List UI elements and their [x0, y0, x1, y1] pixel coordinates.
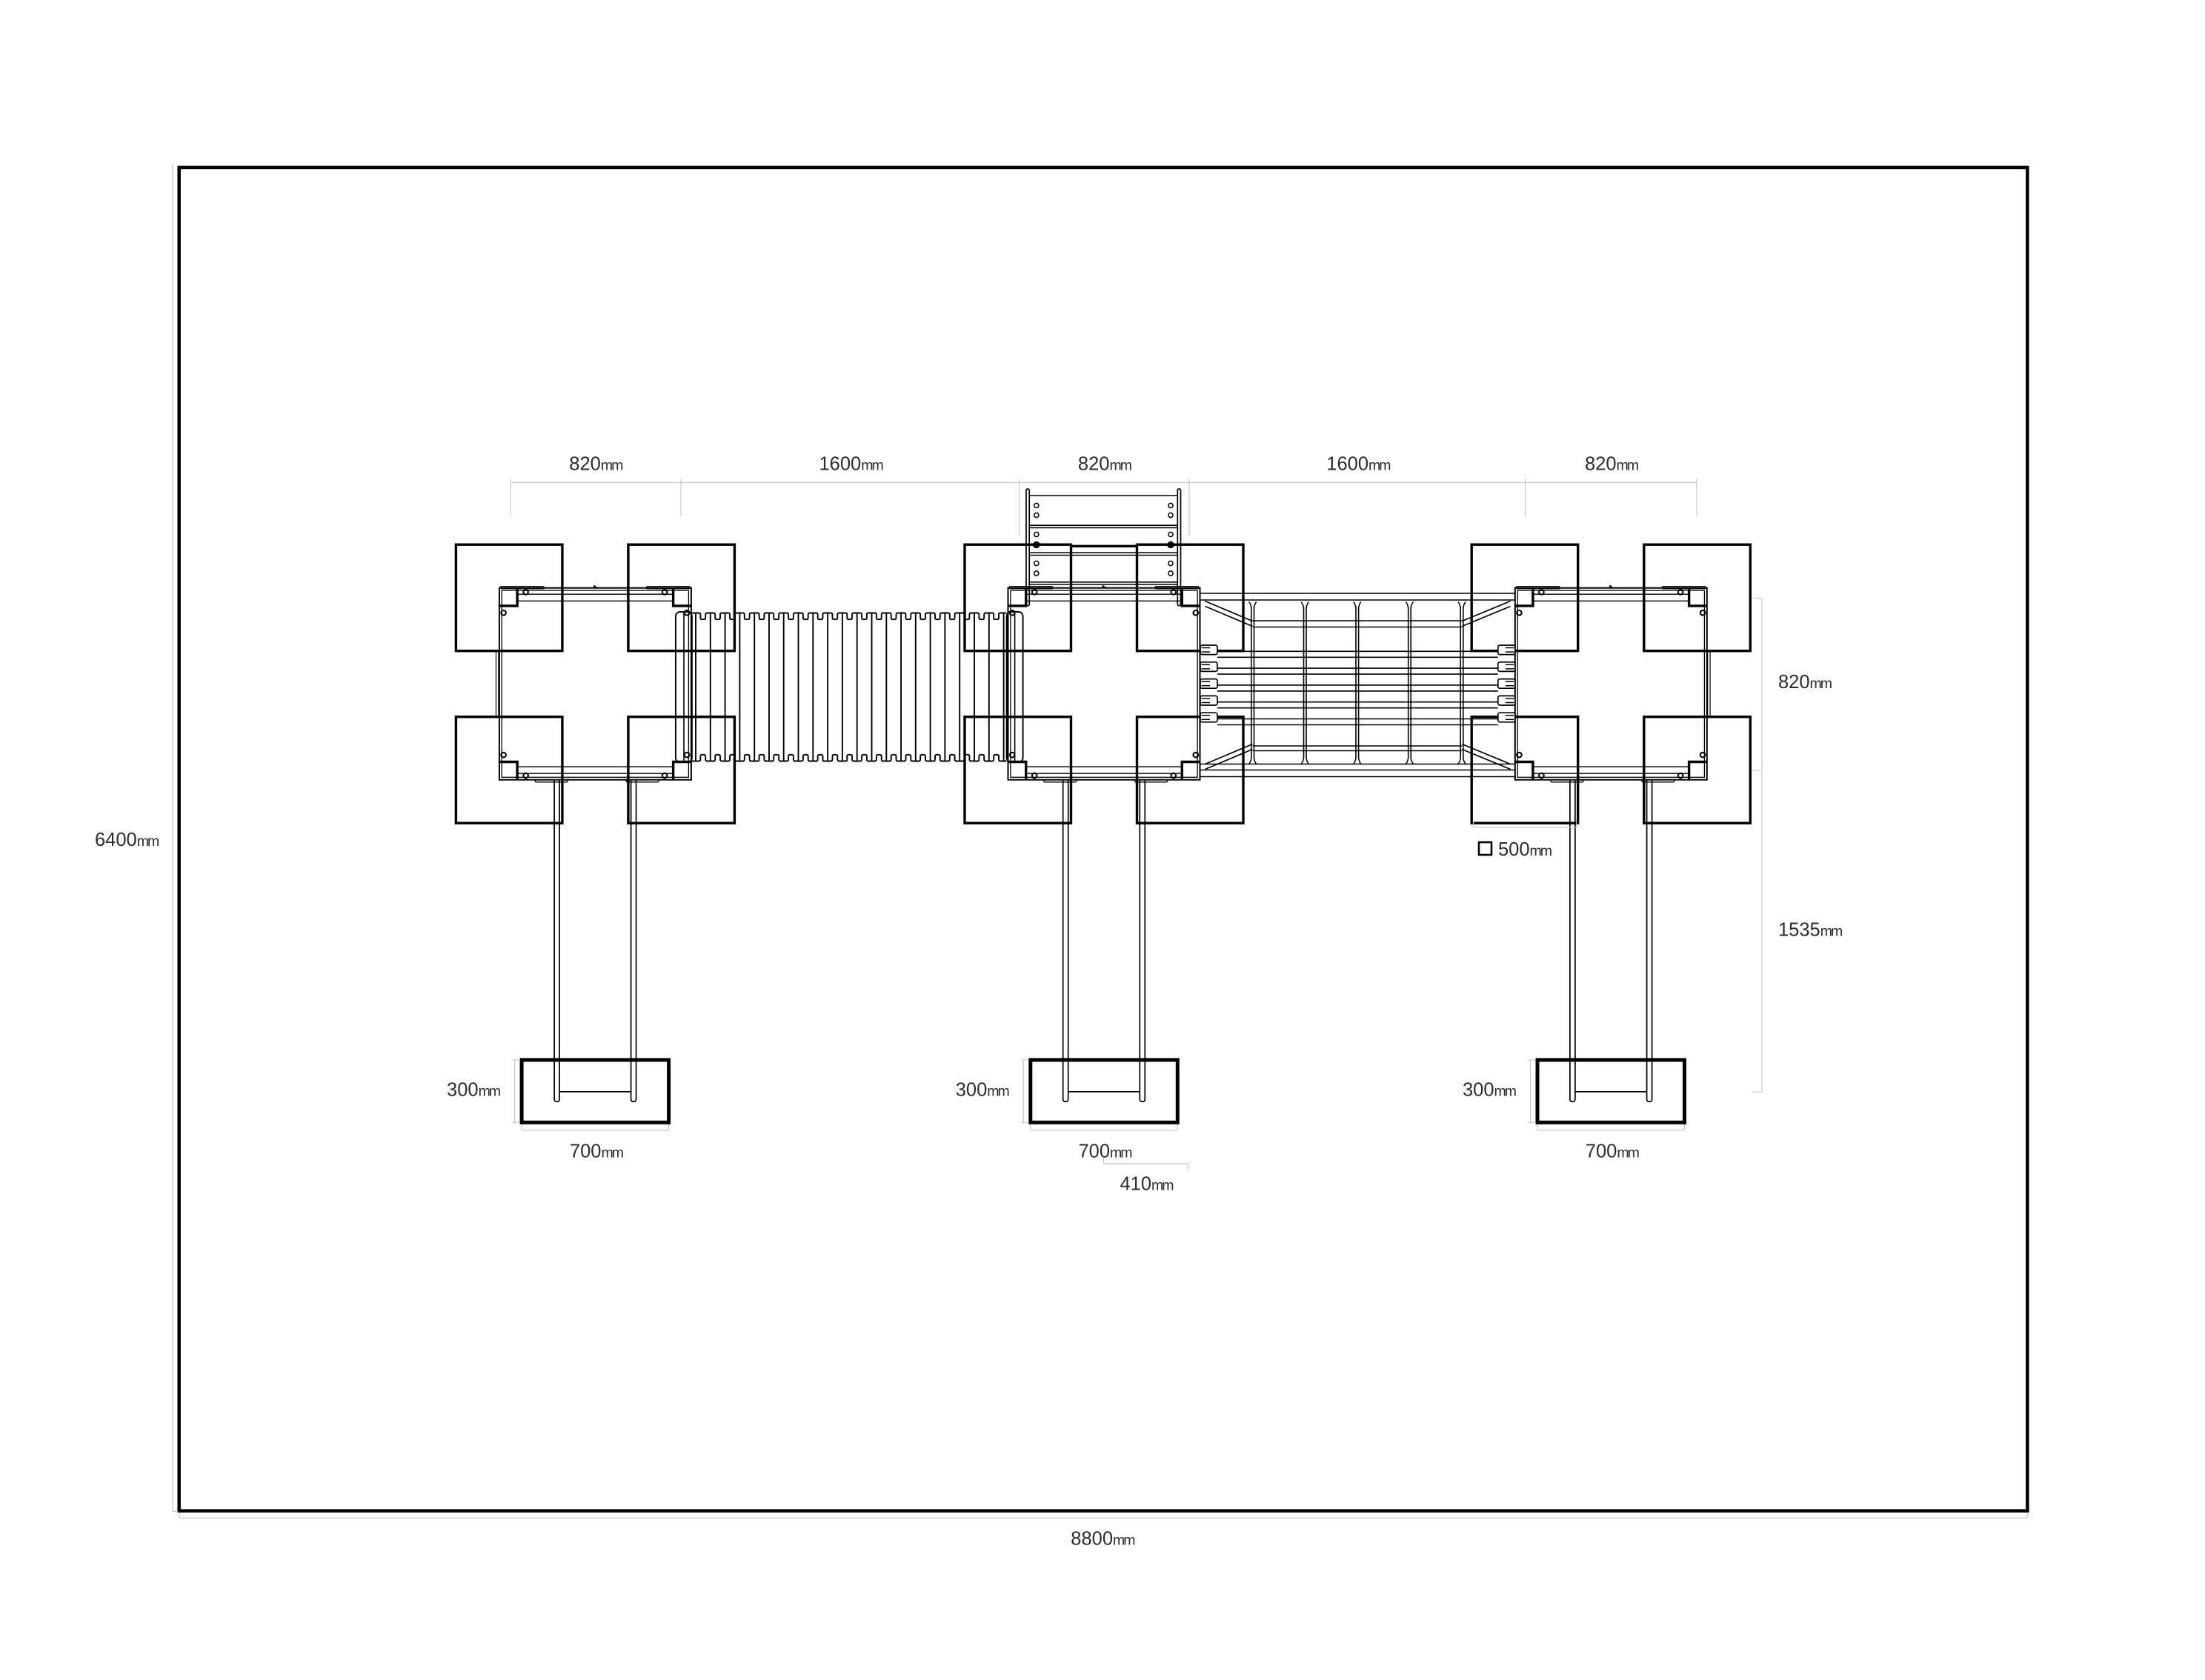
svg-text:6400mm: 6400mm: [95, 830, 159, 850]
svg-text:700mm: 700mm: [1079, 1141, 1133, 1162]
svg-text:500mm: 500mm: [1498, 839, 1552, 860]
svg-text:700mm: 700mm: [570, 1141, 624, 1162]
svg-text:820mm: 820mm: [1585, 453, 1639, 474]
svg-text:700mm: 700mm: [1586, 1141, 1640, 1162]
svg-text:1535mm: 1535mm: [1778, 920, 1843, 941]
svg-text:300mm: 300mm: [1463, 1080, 1517, 1101]
svg-text:1600mm: 1600mm: [819, 453, 884, 474]
svg-text:820mm: 820mm: [569, 453, 623, 474]
svg-text:1600mm: 1600mm: [1326, 453, 1391, 474]
svg-text:8800mm: 8800mm: [1071, 1529, 1135, 1550]
svg-text:300mm: 300mm: [447, 1080, 501, 1101]
svg-text:300mm: 300mm: [956, 1080, 1010, 1101]
svg-text:820mm: 820mm: [1778, 672, 1832, 693]
svg-text:820mm: 820mm: [1078, 453, 1132, 474]
svg-text:410mm: 410mm: [1120, 1174, 1174, 1195]
